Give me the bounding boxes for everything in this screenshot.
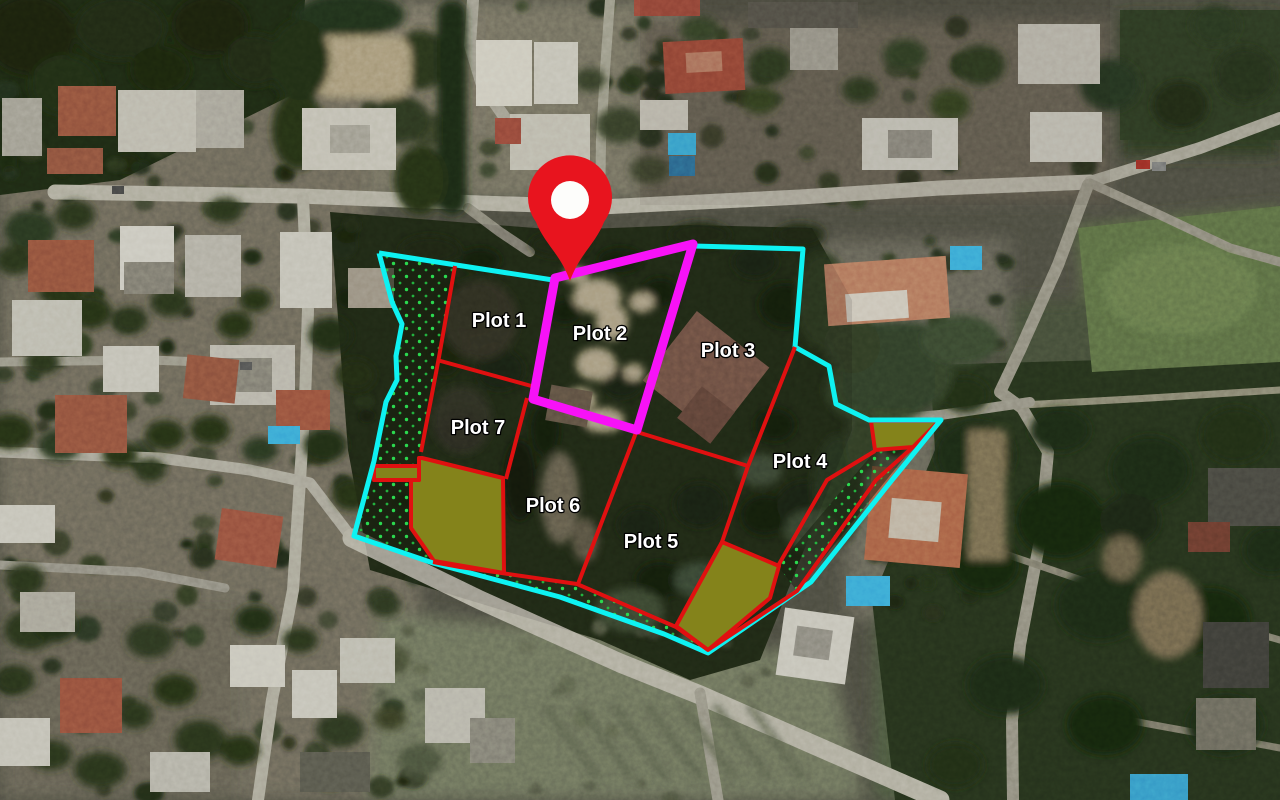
svg-text:Plot 7: Plot 7 bbox=[451, 417, 505, 439]
svg-text:Plot 3: Plot 3 bbox=[701, 340, 755, 362]
svg-text:Plot 4: Plot 4 bbox=[773, 451, 828, 473]
svg-text:Plot 5: Plot 5 bbox=[624, 531, 678, 553]
svg-text:Plot 6: Plot 6 bbox=[526, 495, 580, 517]
svg-text:Plot 1: Plot 1 bbox=[472, 310, 526, 332]
svg-text:Plot 2: Plot 2 bbox=[573, 323, 627, 345]
